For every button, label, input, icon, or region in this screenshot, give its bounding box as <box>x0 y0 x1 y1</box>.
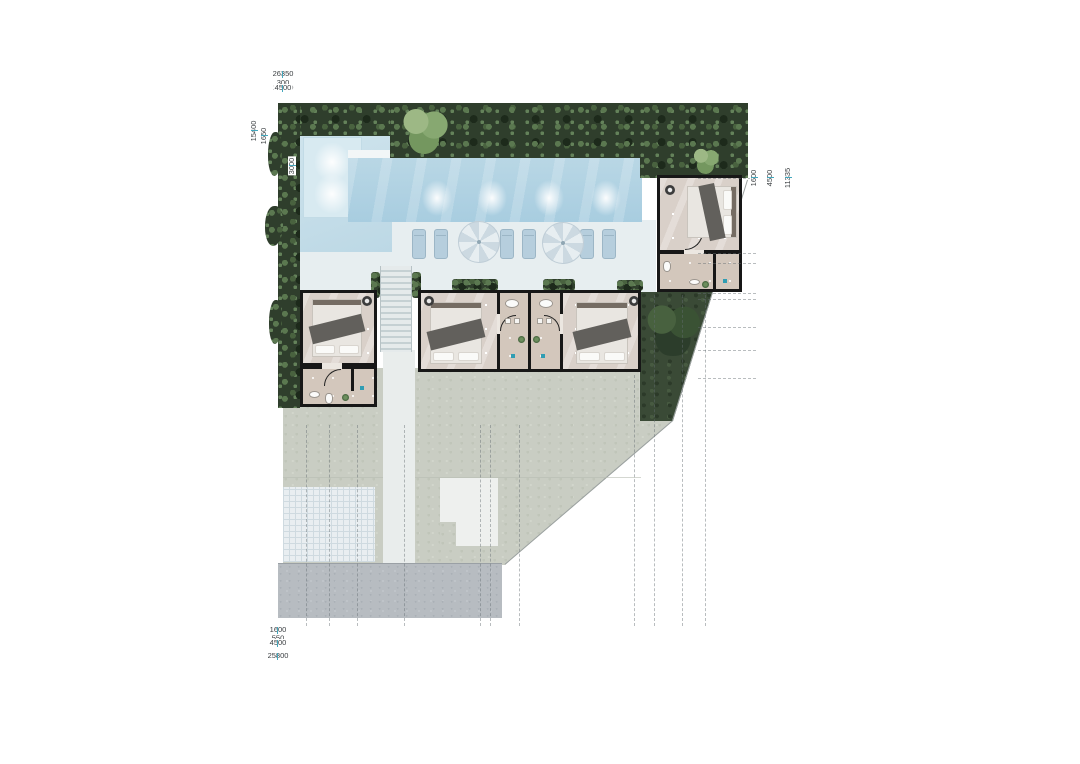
bedroom-1-walls <box>300 290 377 407</box>
pool-light <box>534 180 564 216</box>
walkway-corridor <box>383 350 415 565</box>
dim-label: 1600 <box>269 626 288 634</box>
dim-top-segments: 300 5850 300 14200 300 900 4500 <box>283 84 748 93</box>
pool-light <box>422 180 452 216</box>
grid-line <box>306 425 307 626</box>
grid-line <box>698 299 756 300</box>
dim-left-segments: 5800 1100 1400 4300 550 1650 <box>260 136 269 397</box>
terrace-joint-line <box>283 477 641 478</box>
dim-left-overall: 15400 <box>250 131 259 403</box>
grid-line <box>490 425 491 626</box>
grid-line <box>698 327 756 328</box>
sun-lounger <box>434 229 448 259</box>
grid-line <box>519 425 520 626</box>
grid-line <box>480 425 481 626</box>
dim-label: 15400 <box>250 120 258 143</box>
dim-right-segments: 4250 550 1700 335 1600 1300 1600 <box>750 178 759 378</box>
sun-lounger <box>522 229 536 259</box>
grid-line <box>698 253 756 254</box>
dim-label: 25800 <box>267 652 290 660</box>
grid-line <box>698 350 756 351</box>
dim-right-overall: 11335 <box>784 178 793 378</box>
patio-notch <box>440 522 456 546</box>
shrub <box>692 146 720 174</box>
pool-light <box>477 180 507 216</box>
grid-line <box>634 375 635 626</box>
dim-pool-inset: 3000 <box>288 166 297 220</box>
staircase <box>380 266 412 352</box>
sun-lounger <box>412 229 426 259</box>
grid-line <box>357 425 358 626</box>
dim-label: 4500 <box>269 639 288 647</box>
bedroom-4-walls <box>657 175 742 292</box>
dim-label: 1600 <box>750 169 758 188</box>
pool-light <box>591 180 621 216</box>
pool-umbrella <box>542 222 584 264</box>
grid-line <box>698 178 756 179</box>
pool-umbrella <box>458 221 500 263</box>
pool-light <box>314 174 350 214</box>
grid-line <box>705 295 706 626</box>
dim-bottom-segments: 1600 1300 1600 2650 4300 550 1650 6500 1… <box>278 626 733 635</box>
grid-line <box>329 425 330 626</box>
dim-label: 3000 <box>288 157 296 176</box>
dim-label: 4500 <box>766 169 774 188</box>
sun-lounger <box>500 229 514 259</box>
dim-label: 26350 <box>272 70 295 78</box>
driveway <box>278 563 502 618</box>
grid-line <box>682 295 683 626</box>
dim-right-groups: 6500 4500 <box>766 178 775 378</box>
dim-bottom-overall: 25800 <box>278 652 733 661</box>
grid-line <box>698 293 756 294</box>
floor-plan-canvas: 26350 300 5850 300 14200 300 900 4500 16… <box>0 0 1080 764</box>
dim-bottom-groups: 4500 4500 <box>278 639 733 648</box>
grid-line <box>654 295 655 626</box>
tree <box>400 104 450 154</box>
dim-top-overall: 26350 <box>283 70 748 79</box>
grid-line <box>698 378 756 379</box>
dim-label: 11335 <box>784 167 792 189</box>
sun-lounger <box>602 229 616 259</box>
dim-label: 4500 <box>274 84 293 92</box>
dim-label: 1650 <box>260 127 268 146</box>
grid-line <box>404 425 405 626</box>
grid-line <box>698 263 756 264</box>
center-block-walls <box>418 290 641 372</box>
